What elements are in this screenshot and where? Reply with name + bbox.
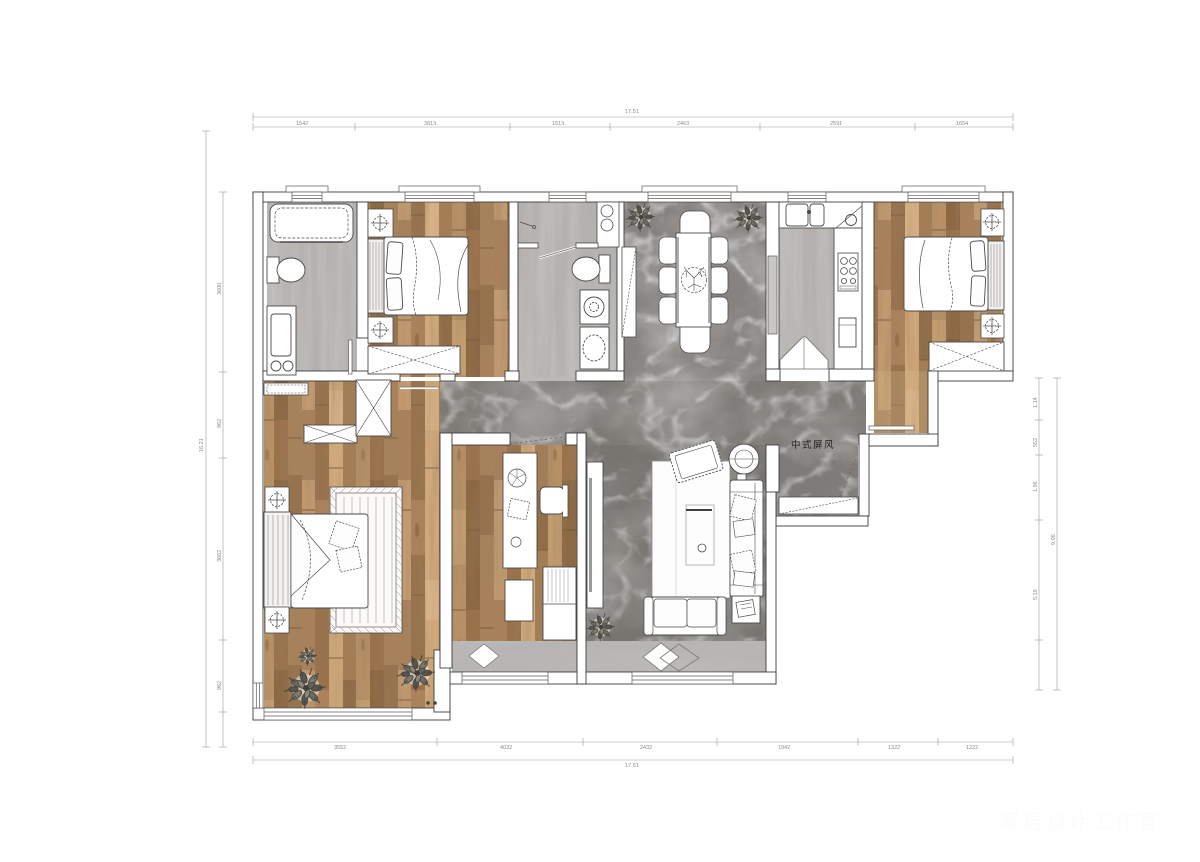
svg-text:17.51: 17.51: [625, 109, 639, 115]
svg-text:552: 552: [1033, 438, 1039, 447]
svg-text:1322: 1322: [888, 745, 900, 751]
svg-text:3552: 3552: [334, 745, 346, 751]
svg-text:9.06: 9.06: [1051, 534, 1057, 545]
svg-text:2591: 2591: [830, 121, 842, 127]
svg-text:1942: 1942: [778, 745, 790, 751]
svg-text:1.96: 1.96: [1033, 481, 1039, 492]
svg-text:中式屏风: 中式屏风: [791, 439, 835, 451]
svg-text:5.19: 5.19: [1033, 589, 1039, 600]
svg-text:3662: 3662: [217, 550, 223, 562]
svg-text:家居设计工作室: 家居设计工作室: [1000, 810, 1161, 833]
svg-text:1513: 1513: [552, 121, 564, 127]
svg-text:1222: 1222: [966, 745, 978, 751]
svg-text:3813: 3813: [424, 121, 436, 127]
svg-text:4032: 4032: [500, 745, 512, 751]
svg-text:2463: 2463: [677, 121, 689, 127]
svg-text:17.51: 17.51: [625, 763, 639, 769]
svg-text:2432: 2432: [640, 745, 652, 751]
svg-text:3600: 3600: [217, 283, 223, 295]
svg-text:1542: 1542: [296, 121, 308, 127]
svg-text:962: 962: [217, 419, 223, 428]
svg-text:1654: 1654: [956, 121, 968, 127]
svg-text:1.14: 1.14: [1033, 397, 1039, 408]
svg-text:16.21: 16.21: [199, 438, 205, 452]
svg-text:962: 962: [217, 681, 223, 690]
